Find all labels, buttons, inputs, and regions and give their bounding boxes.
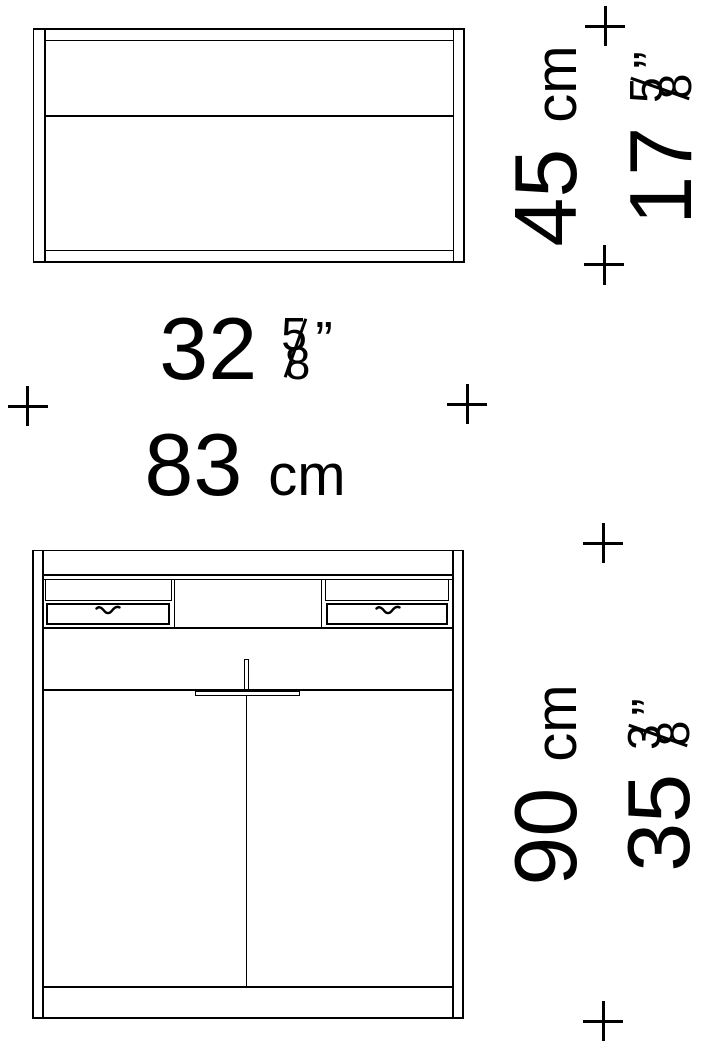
width-inch-value: 32 — [159, 305, 257, 393]
depth-cm-unit: cm — [528, 45, 586, 122]
top-view-top-edge-line — [33, 28, 465, 30]
height-dimension-inch-label: 35 3 8 ” — [615, 606, 703, 966]
height-inch-value: 35 — [615, 774, 703, 872]
front-view-top-edge-line — [32, 550, 464, 552]
center-open-compartment — [174, 579, 321, 629]
height-cm-unit: cm — [528, 684, 586, 761]
depth-dimension-cm-label: 45 cm — [502, 0, 590, 326]
door-center-seam-line — [246, 696, 247, 988]
crosshair-marker-width-left — [8, 386, 48, 426]
width-inch-mark: ” — [315, 315, 330, 367]
width-cm-unit: cm — [268, 447, 345, 505]
top-view-right-outer-line — [463, 28, 465, 262]
top-view-bottom-edge-line — [33, 261, 465, 263]
top-view-left-outer-line — [33, 28, 35, 262]
depth-cm-value: 45 — [502, 149, 590, 247]
crosshair-marker-frontview-top — [583, 523, 623, 563]
crosshair-marker-frontview-bottom — [583, 1001, 623, 1041]
top-view-left-panel-line — [44, 28, 46, 262]
front-view-right-panel-line — [452, 550, 454, 1019]
width-cm-value: 83 — [144, 421, 242, 509]
width-dimension-cm-label: 83 cm — [100, 421, 390, 509]
crosshair-marker-width-right — [447, 384, 487, 424]
flap-handle-ledge — [195, 691, 300, 696]
top-view-right-panel-line — [453, 28, 455, 262]
top-view-back-line — [46, 40, 453, 42]
front-view-right-outer-line — [462, 550, 464, 1019]
right-drawer-handle-icon — [375, 604, 401, 617]
top-panel-underside-line — [44, 574, 452, 576]
technical-drawing-canvas: 45 cm 17 5 8 ” 32 5 8 ” 83 cm 90 cm 35 3… — [0, 0, 707, 1041]
height-inch-mark: ” — [625, 700, 677, 715]
height-cm-value: 90 — [502, 788, 590, 886]
front-view-bottom-edge-line — [32, 1017, 464, 1019]
depth-dimension-inch-label: 17 5 8 ” — [617, 0, 705, 319]
flap-center-gap — [244, 659, 248, 692]
left-slot-compartment — [45, 579, 172, 602]
depth-inch-value: 17 — [617, 127, 705, 225]
top-view-front-line — [46, 250, 453, 252]
front-view-left-outer-line — [32, 550, 34, 1019]
front-view-left-panel-line — [42, 550, 44, 1019]
height-dimension-cm-label: 90 cm — [502, 605, 590, 965]
width-dimension-inch-label: 32 5 8 ” — [100, 305, 390, 393]
plinth-top-line — [43, 986, 452, 988]
depth-inch-mark: ” — [627, 53, 679, 68]
right-slot-compartment — [325, 579, 449, 602]
top-view-middle-line — [46, 115, 453, 117]
left-drawer-handle-icon — [95, 604, 121, 617]
